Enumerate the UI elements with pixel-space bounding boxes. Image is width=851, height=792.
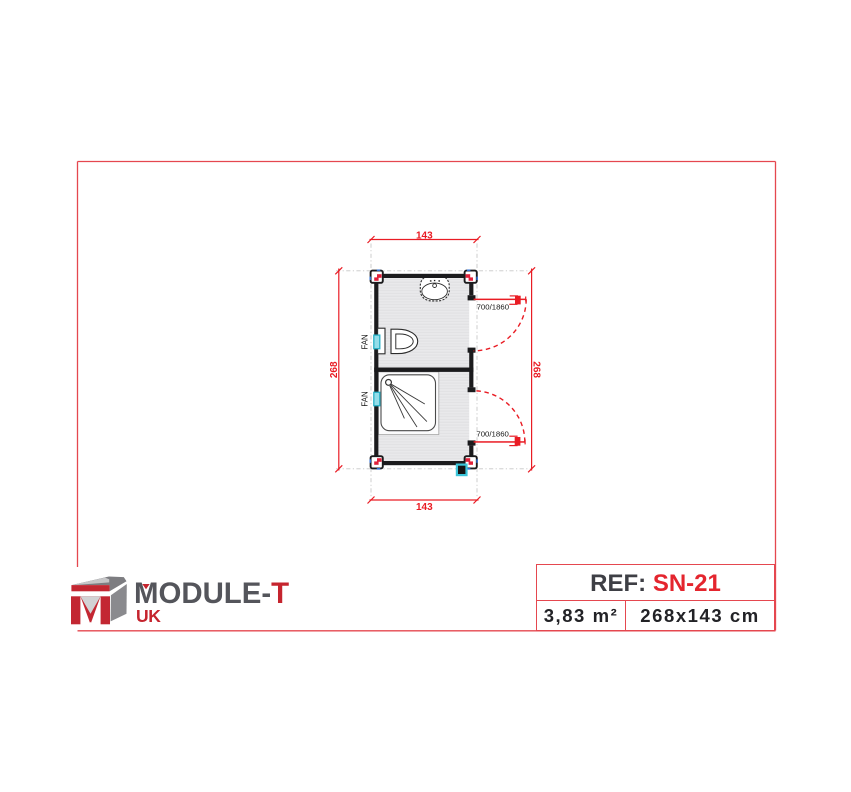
svg-text:268: 268: [530, 361, 541, 378]
svg-text:700/1860: 700/1860: [477, 302, 510, 311]
svg-text:143: 143: [416, 502, 433, 513]
svg-text:143: 143: [416, 230, 433, 241]
svg-text:FAN: FAN: [361, 391, 370, 406]
svg-text:700/1860: 700/1860: [476, 429, 509, 438]
svg-text:FAN: FAN: [361, 334, 370, 349]
svg-text:268: 268: [329, 361, 340, 378]
